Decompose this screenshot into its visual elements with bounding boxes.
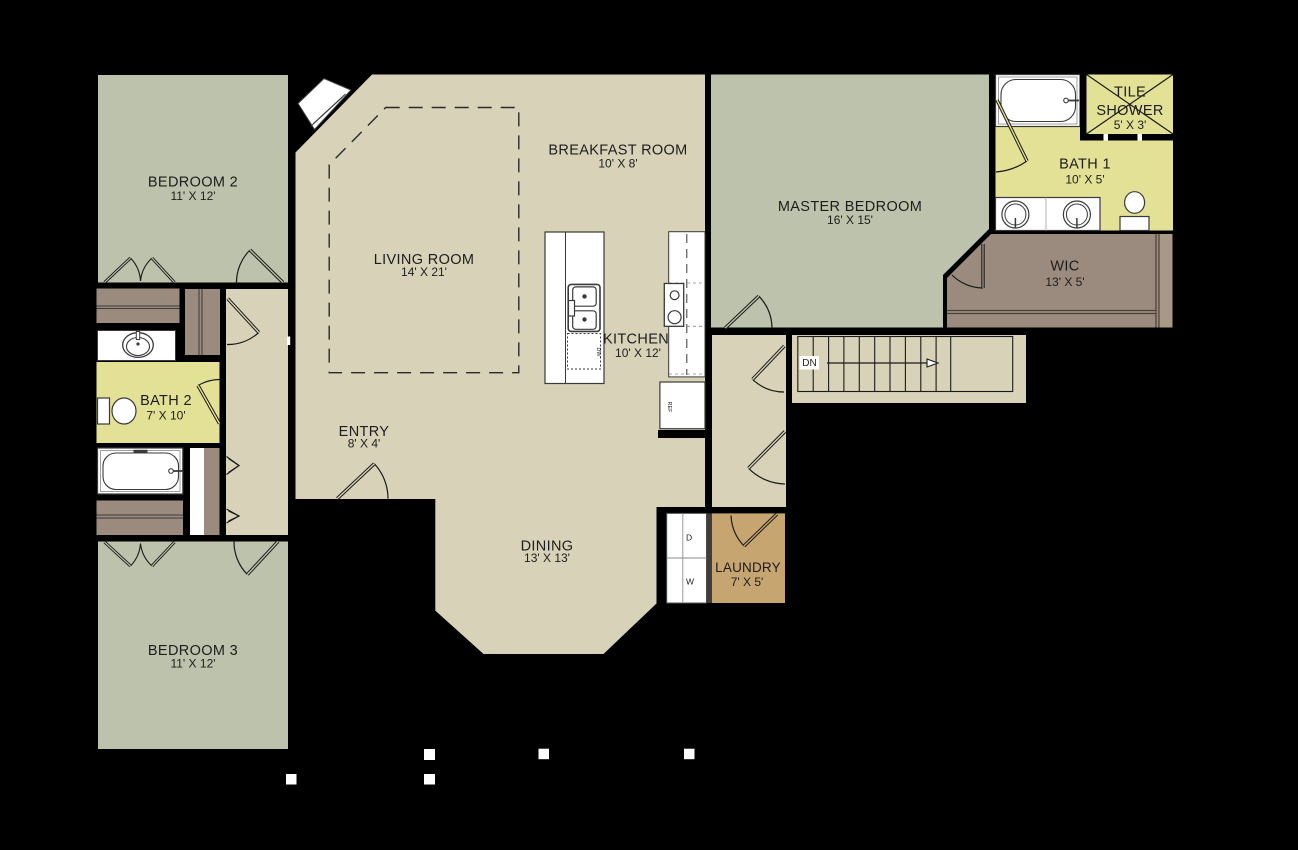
svg-text:13' X 13': 13' X 13' xyxy=(524,551,570,565)
svg-text:7' X 10': 7' X 10' xyxy=(146,409,185,423)
svg-text:D: D xyxy=(686,533,692,543)
svg-text:LAUNDRY: LAUNDRY xyxy=(715,560,781,575)
svg-text:SHOWER: SHOWER xyxy=(1096,103,1163,119)
svg-text:DW: DW xyxy=(595,347,601,357)
svg-text:16' X 15': 16' X 15' xyxy=(827,213,873,227)
svg-text:10' X 12': 10' X 12' xyxy=(615,346,661,360)
svg-text:10' X 5': 10' X 5' xyxy=(1065,173,1104,187)
svg-text:TILE: TILE xyxy=(1114,85,1146,101)
svg-text:11' X 12': 11' X 12' xyxy=(170,657,215,671)
svg-text:8' X 4': 8' X 4' xyxy=(348,437,381,451)
svg-text:BATH 2: BATH 2 xyxy=(140,393,192,409)
svg-text:W: W xyxy=(686,577,694,587)
svg-text:5' X 3': 5' X 3' xyxy=(1114,118,1147,132)
svg-text:11' X 12': 11' X 12' xyxy=(170,189,215,203)
svg-text:BATH 1: BATH 1 xyxy=(1059,157,1111,173)
svg-text:REF: REF xyxy=(666,402,672,414)
svg-text:WIC: WIC xyxy=(1050,259,1079,275)
svg-text:13' X 5': 13' X 5' xyxy=(1045,275,1084,289)
svg-text:DN: DN xyxy=(802,358,816,369)
svg-text:10' X 8': 10' X 8' xyxy=(598,157,637,171)
svg-text:7' X 5': 7' X 5' xyxy=(731,575,764,589)
svg-text:14' X 21': 14' X 21' xyxy=(401,265,447,279)
